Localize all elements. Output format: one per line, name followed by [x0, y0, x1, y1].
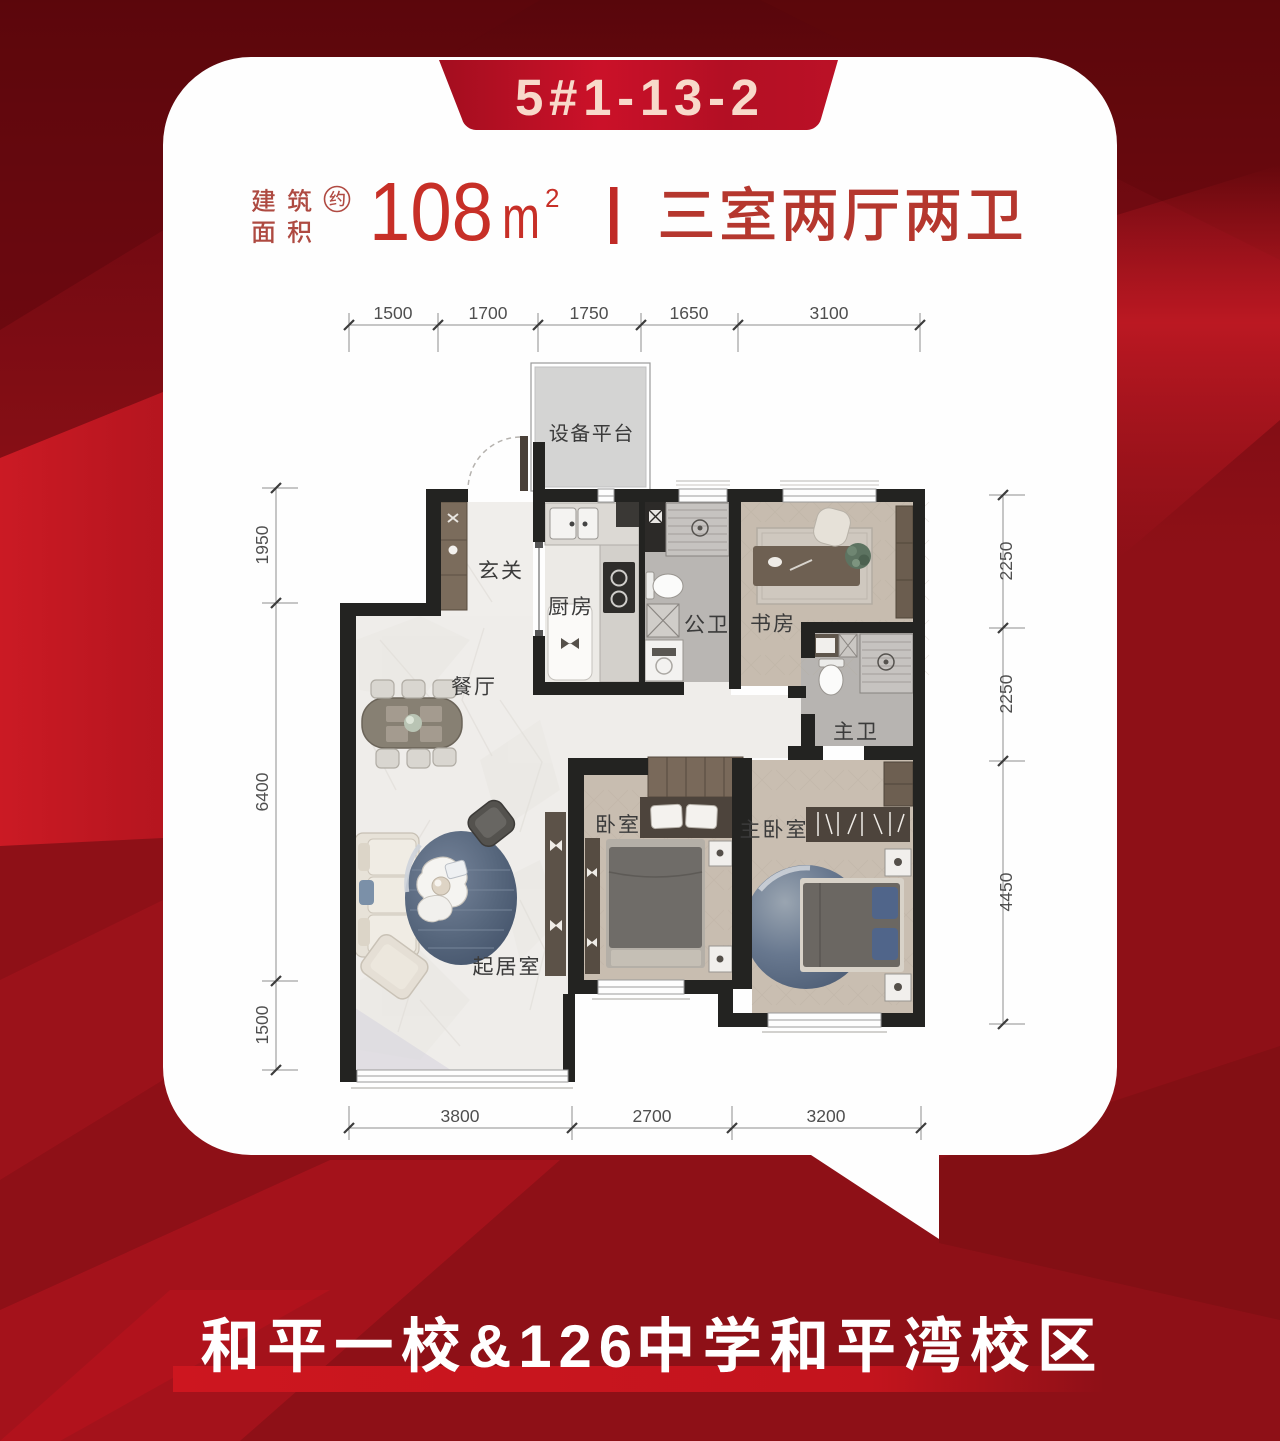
svg-text:108: 108 [369, 165, 493, 258]
svg-text:2: 2 [545, 183, 559, 213]
svg-text:1700: 1700 [469, 303, 508, 323]
svg-text:1950: 1950 [252, 525, 272, 564]
svg-text:1750: 1750 [570, 303, 609, 323]
svg-text:2250: 2250 [996, 541, 1016, 580]
svg-text:3100: 3100 [810, 303, 849, 323]
svg-text:2250: 2250 [996, 674, 1016, 713]
svg-text:1500: 1500 [374, 303, 413, 323]
svg-text:6400: 6400 [252, 772, 272, 811]
svg-text:2700: 2700 [633, 1106, 672, 1126]
svg-text:1500: 1500 [252, 1005, 272, 1044]
svg-text:3200: 3200 [807, 1106, 846, 1126]
svg-text:&126: &126 [468, 1313, 639, 1380]
svg-text:m: m [502, 184, 540, 251]
svg-text:1650: 1650 [670, 303, 709, 323]
svg-text:4450: 4450 [996, 872, 1016, 911]
svg-text:3800: 3800 [441, 1106, 480, 1126]
